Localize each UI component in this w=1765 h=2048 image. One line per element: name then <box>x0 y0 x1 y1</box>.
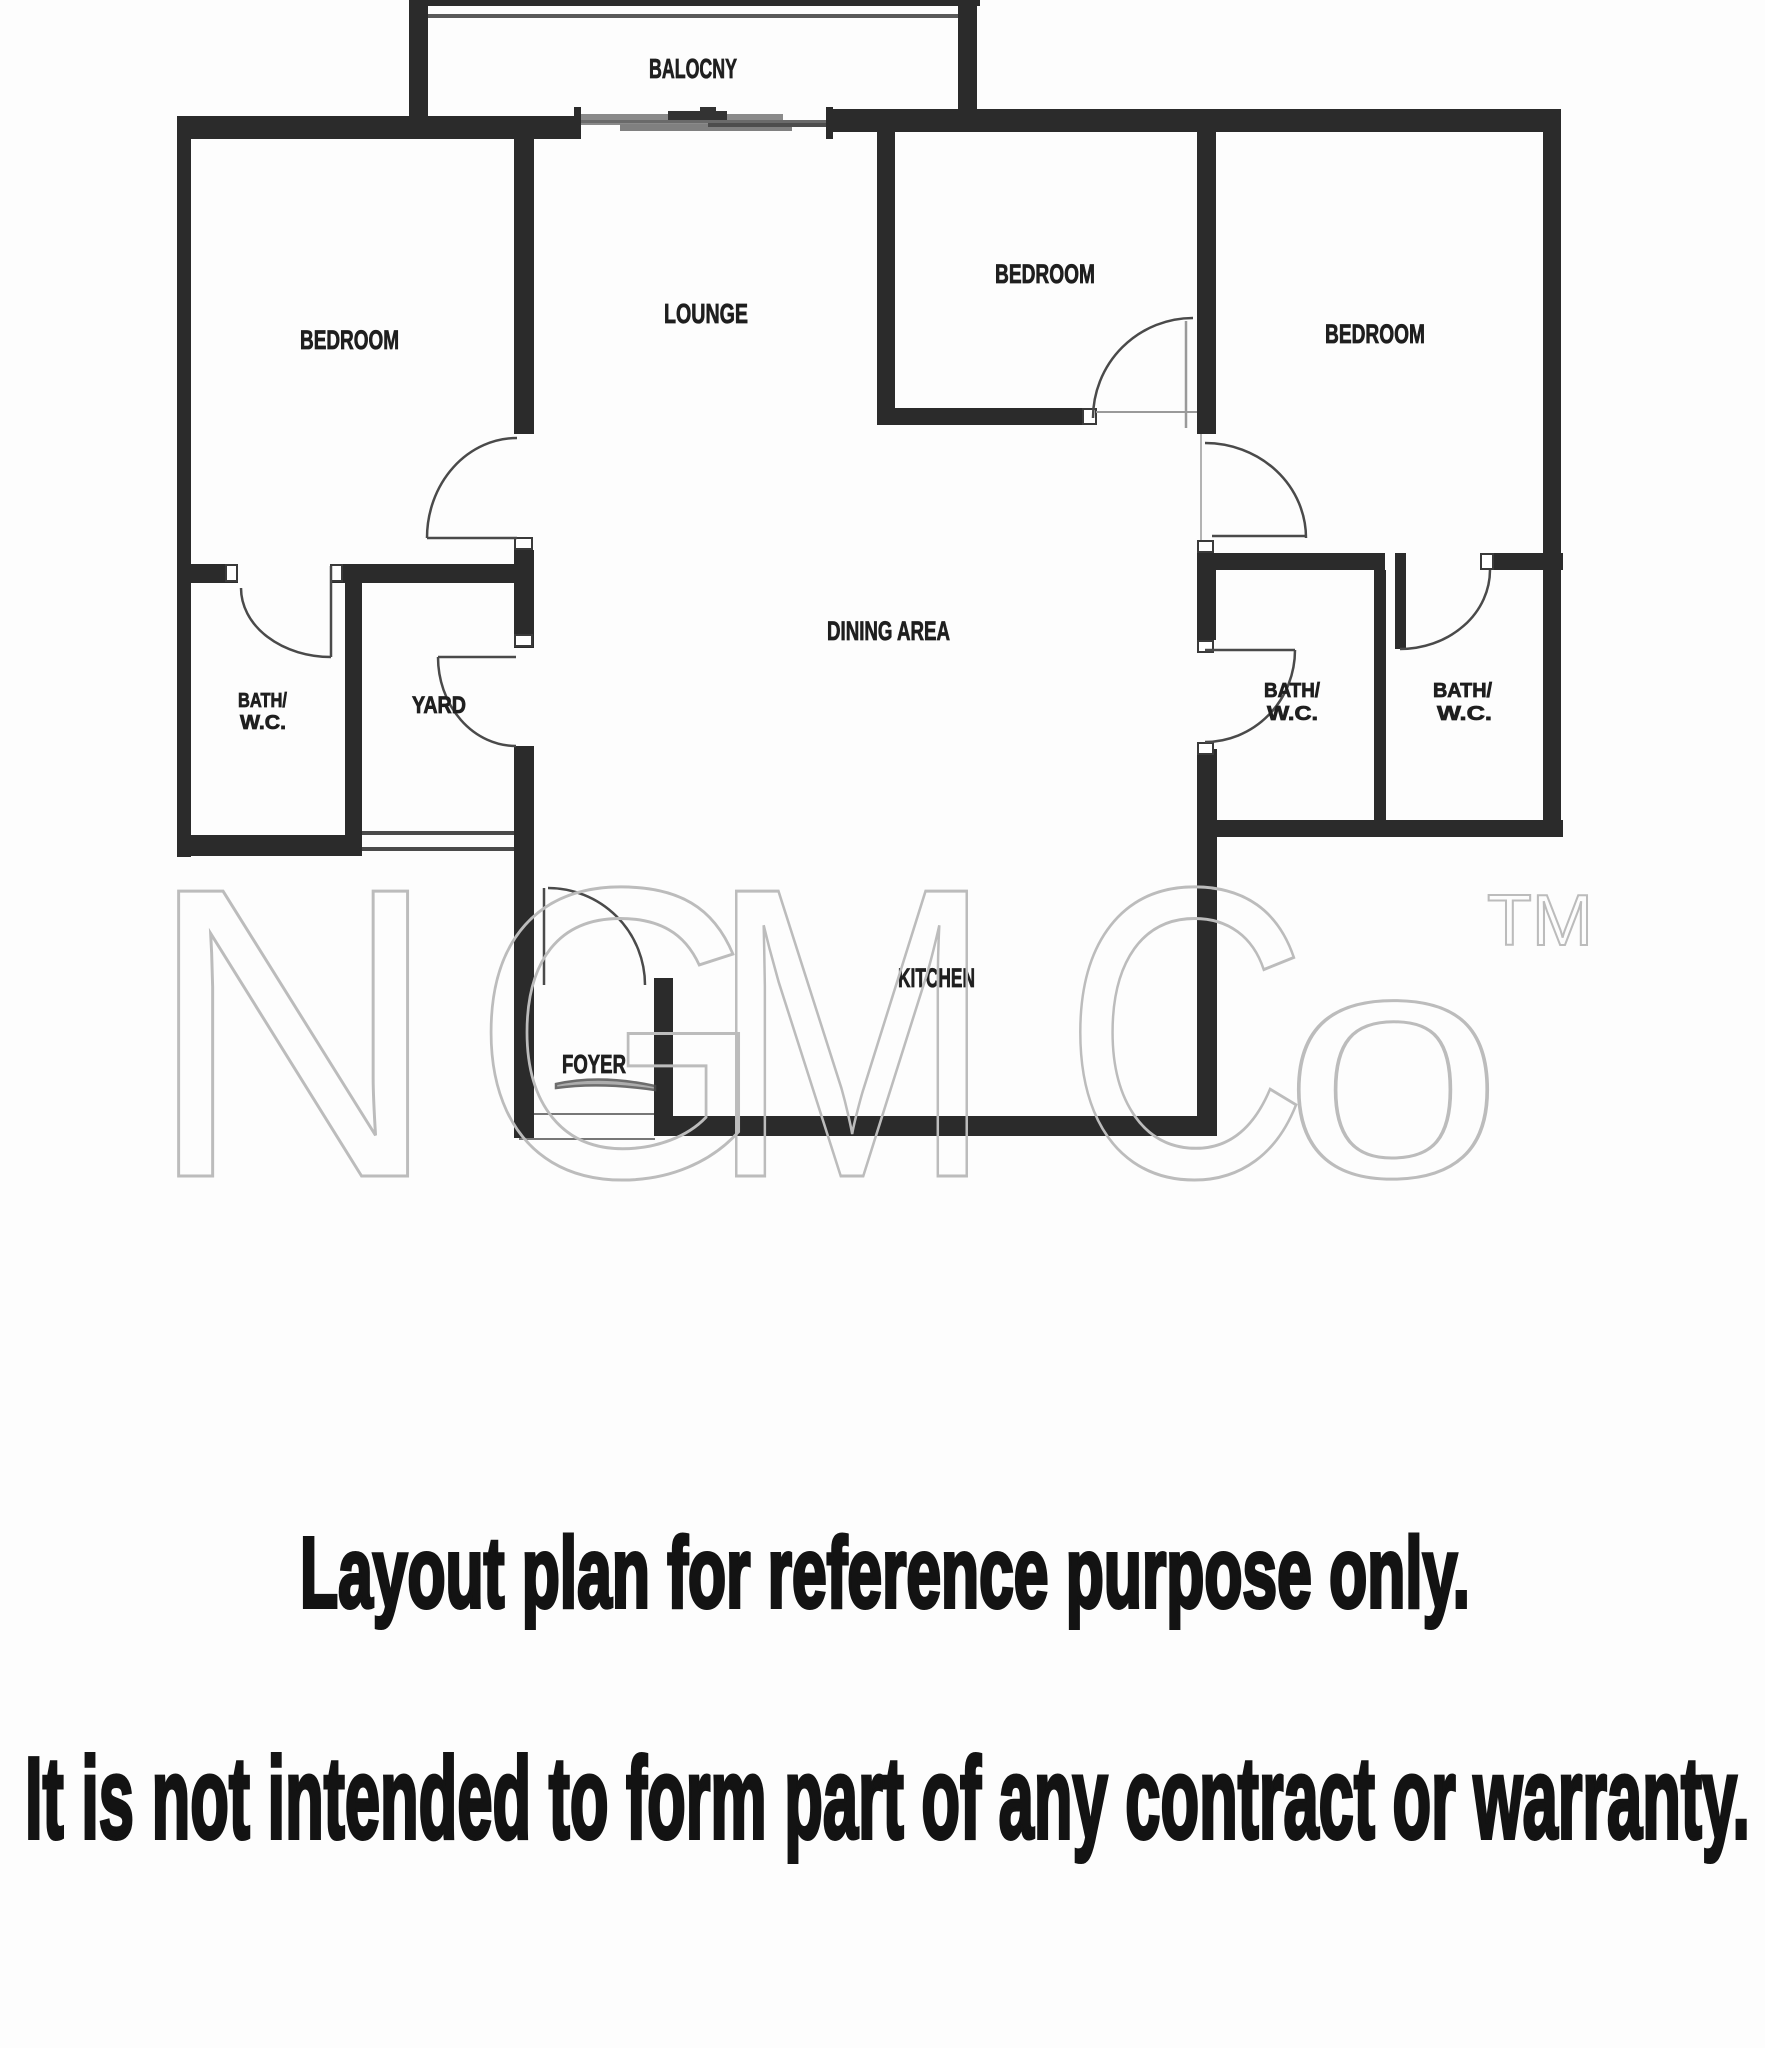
svg-text:C: C <box>1063 801 1309 1264</box>
svg-text:BATH/: BATH/ <box>1264 680 1320 702</box>
svg-text:W.C.: W.C. <box>240 712 286 734</box>
svg-text:YARD: YARD <box>412 692 466 719</box>
svg-text:M: M <box>708 801 995 1264</box>
svg-text:o: o <box>1282 882 1504 1246</box>
svg-text:Layout plan for reference purp: Layout plan for reference purpose only. <box>300 1517 1470 1629</box>
svg-text:TM: TM <box>1487 881 1593 961</box>
svg-text:LOUNGE: LOUNGE <box>664 298 748 329</box>
svg-text:BEDROOM: BEDROOM <box>1325 319 1425 349</box>
svg-text:BATH/: BATH/ <box>238 690 287 712</box>
svg-text:It is not intended to form par: It is not intended to form part of any c… <box>25 1733 1750 1863</box>
svg-text:BEDROOM: BEDROOM <box>300 325 399 355</box>
svg-text:DINING AREA: DINING AREA <box>827 616 950 646</box>
svg-text:BALOCNY: BALOCNY <box>649 53 737 84</box>
svg-text:N: N <box>145 801 441 1264</box>
svg-text:W.C.: W.C. <box>1437 703 1492 725</box>
svg-text:W.C.: W.C. <box>1267 703 1318 725</box>
svg-text:BEDROOM: BEDROOM <box>995 259 1095 289</box>
svg-text:BATH/: BATH/ <box>1433 680 1492 702</box>
